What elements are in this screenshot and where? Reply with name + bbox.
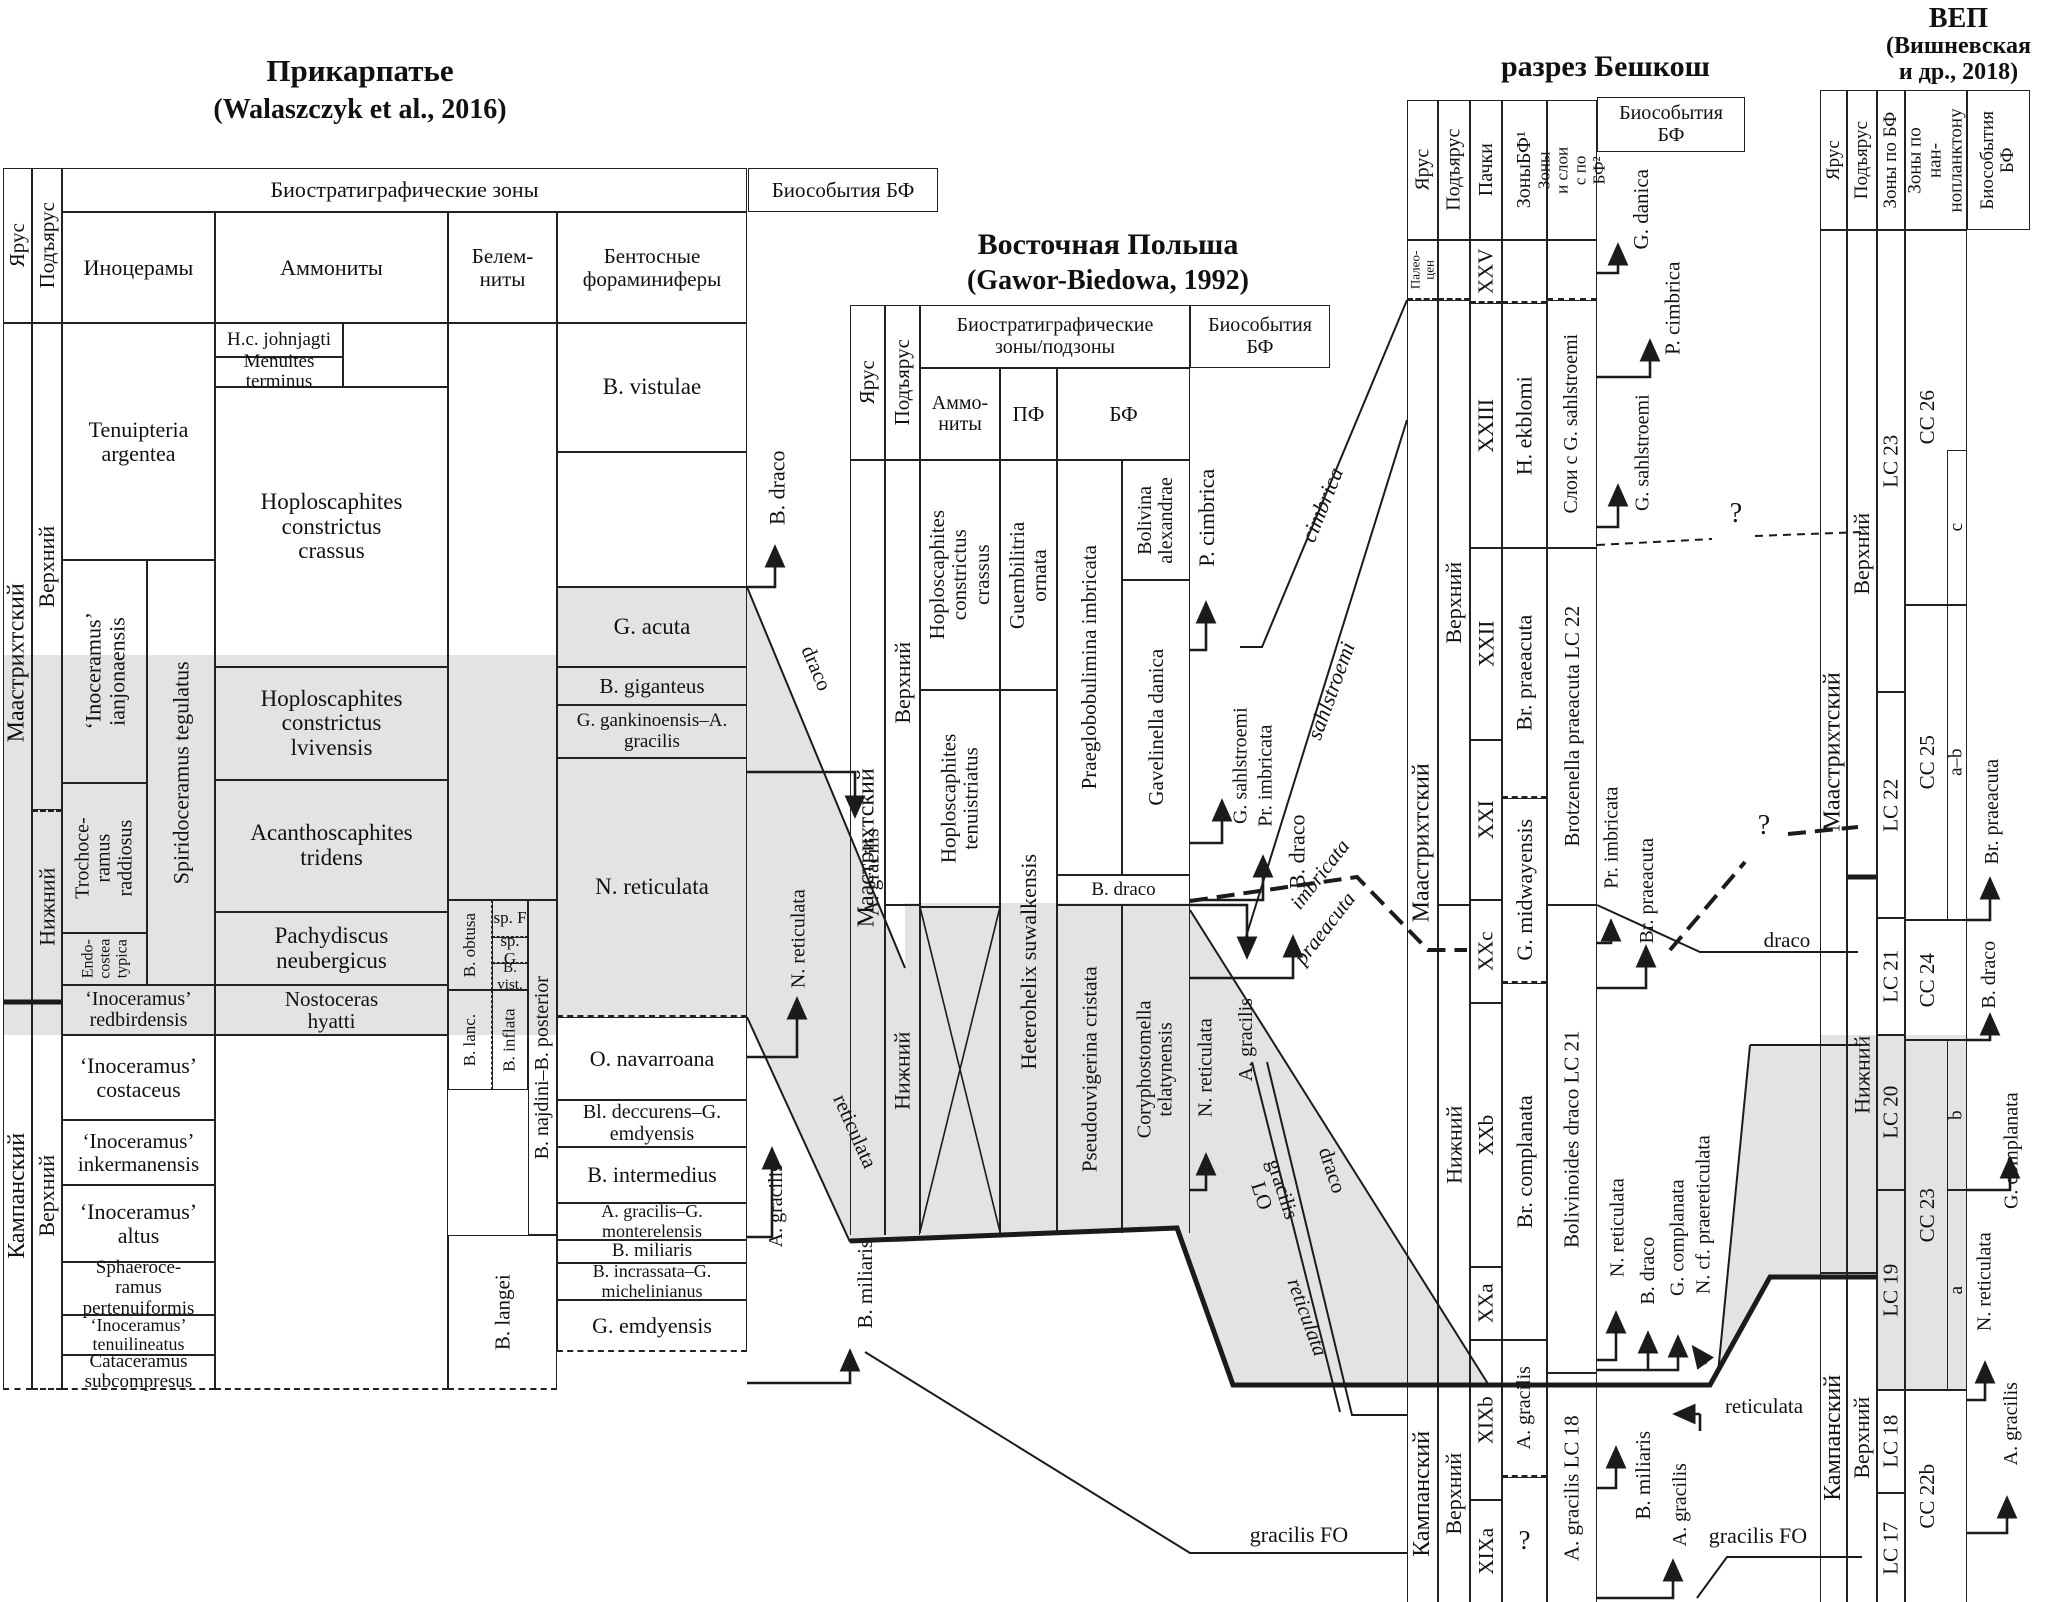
fo-arrow-icon	[1190, 858, 1263, 900]
bioevent-label: Pr. imbricata	[1596, 758, 1628, 918]
zone-cell: B. inflata	[492, 990, 528, 1090]
tie-label: draco	[1753, 926, 1821, 954]
substage-cell: Верхний	[1847, 230, 1877, 877]
zone-cell: B. incrassata–G. michelinianus	[557, 1263, 747, 1300]
zone-cell: LC 17	[1877, 1493, 1905, 1602]
bioevent-label: A. gracilis	[758, 1148, 796, 1263]
column-header: Аммо-ниты	[920, 368, 1000, 460]
zone-cell	[215, 1035, 448, 1390]
stage-cell: Маастрихтский	[3, 323, 32, 1002]
fo-arrow-icon	[1648, 1338, 1678, 1370]
fo-arrow-icon	[1597, 1314, 1616, 1360]
panel-title: ВЕП	[1862, 4, 2055, 34]
column-header: Подъярус	[32, 168, 62, 323]
column-header: Подъярус	[1847, 90, 1877, 230]
column-header: Ярус	[1407, 100, 1438, 240]
bioevents-header: Биособытия БФ	[1597, 97, 1745, 152]
fo-arrow-icon	[1190, 1156, 1206, 1190]
substage-cell: Нижний	[885, 905, 920, 1235]
zone-cell: Pseudouvigerina cristata	[1057, 905, 1122, 1233]
zone-cell: B. lanc.	[448, 990, 492, 1090]
stage-cell: Палео-цен	[1407, 240, 1438, 300]
stage-cell: Маастрихтский	[1820, 230, 1847, 1273]
zone-cell: Trochoce-ramus raddiosus	[62, 783, 147, 933]
tie-label: gracilis LO	[1230, 1128, 1314, 1256]
zone-cell: Bolivina alexandrae	[1122, 460, 1190, 580]
stratigraphic-correlation-chart: Прикарпатье (Walaszczyk et al., 2016) Яр…	[0, 0, 2055, 1602]
zone-cell: LC 18	[1877, 1390, 1905, 1493]
zone-cell: B. vistulae	[557, 323, 747, 452]
zone-cell: Pachydiscus neubergicus	[215, 912, 448, 985]
bioevent-label: P. cimbrica	[1188, 438, 1226, 598]
zone-cell: LC 22	[1877, 692, 1905, 918]
subzone-cell: b	[1947, 1040, 1967, 1190]
zone-cell: Praeglobobulimina imbricata	[1057, 460, 1122, 875]
substage-cell: Верхний	[885, 460, 920, 905]
substage-cell	[1438, 240, 1470, 300]
column-header: Зоны по БФ	[1877, 90, 1905, 230]
zone-cell: B. intermedius	[557, 1147, 747, 1203]
fo-arrow-icon	[1597, 922, 1611, 943]
substage-cell: Верхний	[1847, 1273, 1877, 1602]
zone-cell: Cataceramus subcompresus	[62, 1355, 215, 1390]
stage-cell: Маастрихтский	[850, 460, 885, 1235]
subzone-cell: a	[1947, 1190, 1967, 1390]
zone-cell: Coryphostomella telatynensis	[1122, 905, 1190, 1233]
tie-label: gracilis FO	[1698, 1522, 1818, 1550]
bioevent-label: B. miliaris	[845, 1222, 885, 1347]
zone-cell: Heterohelix suwalkensis	[1000, 690, 1057, 1233]
fo-arrow-icon	[1597, 487, 1618, 527]
panel-subtitle: (Walaszczyk et al., 2016)	[110, 92, 610, 128]
packet-cell: XXIII	[1470, 303, 1502, 548]
zone-cell: Guembilitria ornata	[1000, 460, 1057, 690]
zone-cell: Acanthoscaphites tridens	[215, 780, 448, 912]
column-header: БФ	[1057, 368, 1190, 460]
fo-arrow-icon	[747, 1000, 797, 1057]
bioevent-label: Br. praeacuta	[1630, 793, 1666, 988]
panel-subtitle: и др., 2018)	[1862, 59, 2055, 86]
zone-cell: Menuites terminus	[215, 357, 343, 387]
stage-cell: Кампанский	[1820, 1273, 1847, 1602]
zone-cell: B. najdini–B. posterior	[528, 900, 557, 1235]
zone-cell: Hoploscaphites constrictus lvivensis	[215, 667, 448, 780]
zone-cell: Bl. deccurens–G. emdyensis	[557, 1100, 747, 1147]
zone-cell: Br. complanata	[1502, 983, 1547, 1340]
packet-cell: XIXa	[1470, 1500, 1502, 1602]
bioevent-label: N. reticulata	[1188, 988, 1224, 1148]
substage-cell: Верхний	[32, 323, 62, 810]
bioevent-label: G. sahlstroemi	[1625, 362, 1661, 544]
column-header: Биостратиграфические зоны	[62, 168, 747, 212]
bioevent-label: N. reticulata	[780, 883, 818, 995]
zone-cell: B. vist.	[492, 963, 528, 990]
tie-label: reticulata	[1265, 1256, 1349, 1378]
packet-cell: XXV	[1470, 240, 1502, 303]
substage-cell: Верхний	[1438, 300, 1470, 905]
zone-cell: G. midwayensis	[1502, 798, 1547, 983]
zone-cell: Endo-costea typica	[62, 933, 147, 985]
zone-cell: A. gracilis–G. monterelensis	[557, 1203, 747, 1240]
zone-cell: G. acuta	[557, 587, 747, 667]
zone-cell	[557, 452, 747, 587]
packet-cell: XXb	[1470, 1003, 1502, 1267]
column-header: Подъярус	[1438, 100, 1470, 240]
zone-cell: ‘Inoceramus’ redbirdensis	[62, 985, 215, 1035]
fo-arrow-icon	[1967, 1364, 1985, 1400]
substage-cell: Верхний	[1438, 1385, 1470, 1602]
bioevents-header: Биособытия БФ	[1190, 305, 1330, 368]
zone-cell: A. gracilis LC 18	[1547, 1373, 1597, 1602]
bioevent-label: B. draco	[1973, 920, 2007, 1030]
subzone-cell: c	[1947, 450, 1967, 605]
stage-cell: Кампанский	[1407, 1385, 1438, 1602]
zone-cell: G. gankinoensis–A. gracilis	[557, 705, 747, 758]
column-header: Ярус	[3, 168, 32, 323]
substage-cell: Нижний	[1847, 877, 1877, 1273]
zone-cell	[1502, 240, 1547, 303]
column-header: Ярус	[1820, 90, 1847, 230]
column-header: Пачки	[1470, 100, 1502, 240]
zone-cell: Sphaeroce-ramus pertenuiformis	[62, 1262, 215, 1315]
fo-arrow-icon	[1967, 1499, 2007, 1533]
zone-cell	[343, 323, 448, 387]
zone-cell: CC 24	[1905, 920, 1967, 1040]
bioevent-label: B. draco	[757, 415, 797, 560]
question-mark: ?	[1502, 1477, 1547, 1602]
zone-cell: LC 23	[1877, 230, 1905, 692]
question-mark: ?	[1748, 806, 1780, 846]
fo-arrow-icon	[747, 1352, 850, 1383]
column-header: Подъярус	[885, 305, 920, 460]
zone-cell: A. gracilis	[1502, 1340, 1547, 1477]
zone-cell: Hoploscaphites constrictus crassus	[920, 460, 1000, 690]
substage-cell: Верхний	[32, 1002, 62, 1390]
panel-title: разрез Бешкош	[1468, 48, 1743, 86]
tie-label: reticulata	[1710, 1392, 1818, 1420]
tie-label: sahlstroemi	[1283, 623, 1378, 758]
zone-cell: Gavelinella danica	[1122, 580, 1190, 875]
zone-cell-crossed	[920, 907, 1000, 1233]
zone-cell: Nostoceras hyatti	[215, 985, 448, 1035]
column-header: Зоны по нан-нопланктону	[1905, 90, 1967, 230]
tie-label: gracilis FO	[1238, 1520, 1360, 1550]
bioevents-header: Биособытия БФ	[748, 168, 938, 212]
panel-title: Восточная Польша	[928, 227, 1288, 263]
zone-cell: Bolivinoides draco LC 21	[1547, 905, 1597, 1373]
tie-label: draco	[786, 638, 846, 698]
zone-cell: B. langei	[448, 1235, 557, 1390]
substage-cell: Нижний	[1438, 905, 1470, 1385]
fo-arrow-icon	[1190, 604, 1206, 650]
column-header: ПФ	[1000, 368, 1057, 460]
packet-cell: XXII	[1470, 548, 1502, 740]
zone-cell: B. miliaris	[557, 1240, 747, 1263]
question-mark: ?	[1720, 494, 1752, 534]
bioevent-label: N. cf. praereticulata	[1686, 1092, 1722, 1337]
zone-cell: Слои с G. sahlstroemi	[1547, 300, 1597, 548]
packet-cell: XXI	[1470, 740, 1502, 900]
zone-cell: Spiridoceramus tegulatus	[147, 560, 215, 985]
zone-cell	[1547, 240, 1597, 300]
bioevent-label: N. reticulata	[1600, 1152, 1636, 1304]
zone-cell: ‘Inoceramus’ inkermanensis	[62, 1120, 215, 1185]
zone-cell: ‘Inoceramus’ costaceus	[62, 1035, 215, 1120]
zone-cell: N. reticulata	[557, 758, 747, 1017]
zone-cell: ‘Inoceramus’ tenuilineatus	[62, 1315, 215, 1355]
subzone-cell: a–b	[1947, 605, 1967, 920]
zone-cell: ‘Inoceramus’ ianjonaensis	[62, 560, 147, 783]
zone-cell: Br. praeacuta	[1502, 548, 1547, 798]
tie-label: praeacuta	[1277, 884, 1373, 972]
zone-cell: G. emdyensis	[557, 1300, 747, 1352]
packet-cell: XXc	[1470, 900, 1502, 1003]
fo-arrow-icon	[1597, 1334, 1648, 1370]
zone-cell: Hoploscaphites tenuistriatus	[920, 690, 1000, 907]
fo-arrow-icon	[1694, 1348, 1706, 1364]
fo-arrow-icon	[1597, 1449, 1616, 1488]
panel-subtitle: (Вишневская	[1862, 33, 2055, 60]
tie-label: cimbrica	[1282, 455, 1362, 555]
zone-cell: ‘Inoceramus’ altus	[62, 1185, 215, 1262]
zone-cell: LC 21	[1877, 918, 1905, 1035]
zone-cell: B. giganteus	[557, 667, 747, 705]
lo-arrow-icon	[747, 772, 855, 815]
bioevents-header: Биособытия БФ	[1967, 90, 2030, 230]
lo-arrow-icon	[1190, 905, 1247, 956]
column-header: Ярус	[850, 305, 885, 460]
column-header: Иноцерамы	[62, 212, 215, 323]
substage-cell: Нижний	[32, 810, 62, 1002]
stage-cell: Кампанский	[3, 1002, 32, 1390]
column-header: Биостратиграфические зоны/подзоны	[920, 305, 1190, 368]
bioevent-label: A. gracilis	[1228, 960, 1266, 1120]
bioevent-label: B. miliaris	[1625, 1383, 1661, 1568]
bioevent-label: N. reticulata	[1968, 1202, 2002, 1362]
bioevent-label: A. gracilis	[1663, 1424, 1699, 1586]
zone-cell	[448, 323, 557, 900]
column-header: Зоны и слои с по БФ²	[1547, 100, 1597, 240]
zone-cell: sp. G	[492, 937, 528, 963]
panel-title: Прикарпатье	[160, 52, 560, 90]
zone-cell: LC 19	[1877, 1190, 1905, 1390]
bioevent-label: Br. praeacuta	[1976, 718, 2010, 906]
packet-cell: XIXb	[1470, 1340, 1502, 1500]
zone-cell: B. obtusa	[448, 900, 492, 990]
zone-cell: LC 20	[1877, 1035, 1905, 1190]
zone-cell: Brotzenella praeacuta LC 22	[1547, 548, 1597, 905]
zone-cell: Tenuipteria argentea	[62, 323, 215, 560]
zone-cell: Hoploscaphites constrictus crassus	[215, 387, 448, 667]
zone-cell: H. ekblomi	[1502, 303, 1547, 548]
zone-cell: B. draco	[1057, 875, 1190, 905]
panel-subtitle: (Gawor-Biedowa, 1992)	[903, 264, 1313, 298]
stage-cell: Маастрихтский	[1407, 300, 1438, 1385]
zone-cell: CC 22b	[1905, 1390, 1967, 1602]
bioevent-label: G. danica	[1623, 143, 1659, 275]
fo-arrow-icon	[1190, 802, 1222, 843]
packet-cell: XXa	[1470, 1267, 1502, 1340]
column-header: Аммониты	[215, 212, 448, 323]
bioevent-label: A. gracilis	[1995, 1348, 2029, 1500]
column-header: Бентосные фораминиферы	[557, 212, 747, 323]
fo-arrow-icon	[1597, 246, 1618, 273]
zone-cell: O. navarroana	[557, 1017, 747, 1100]
column-header: Белем-ниты	[448, 212, 557, 323]
